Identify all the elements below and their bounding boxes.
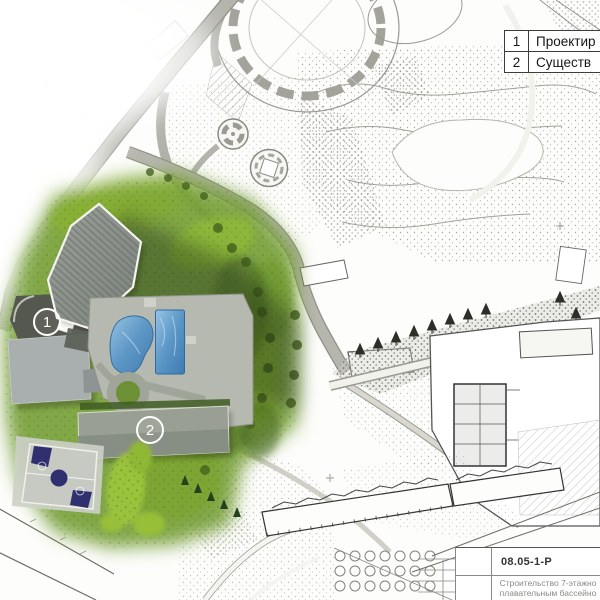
plan-marker-1: 1 <box>34 309 60 335</box>
site-plan-screenshot: 1 2 1 Проектир 2 Существ 08.05-1-Р Строи… <box>0 0 600 600</box>
plan-marker-2: 2 <box>137 417 163 443</box>
legend-row-2: 2 Существ <box>505 52 600 72</box>
fountain-small <box>218 119 248 149</box>
rectangular-pool <box>156 310 185 374</box>
legend-key-2: 2 <box>505 52 529 72</box>
legend-key-1: 1 <box>505 31 529 51</box>
legend-label-2: Существ <box>529 52 591 72</box>
marker-1-number: 1 <box>43 314 51 331</box>
basketball-court <box>12 436 104 514</box>
legend-table: 1 Проектир 2 Существ <box>504 30 600 73</box>
legend-label-1: Проектир <box>529 31 596 51</box>
drawing-code: 08.05-1-Р <box>501 556 552 568</box>
description-line-2: плавательным бассейно <box>496 589 600 599</box>
drawing-description: Строительство 7-этажно плавательным басс… <box>456 576 600 598</box>
fountain-large <box>251 150 288 187</box>
marker-2-number: 2 <box>146 422 154 439</box>
drawing-code-row: 08.05-1-Р <box>456 548 600 576</box>
title-block: 08.05-1-Р Строительство 7-этажно плавате… <box>455 547 600 600</box>
legend-row-1: 1 Проектир <box>505 31 600 52</box>
site-plan-canvas: 1 2 <box>0 0 600 600</box>
